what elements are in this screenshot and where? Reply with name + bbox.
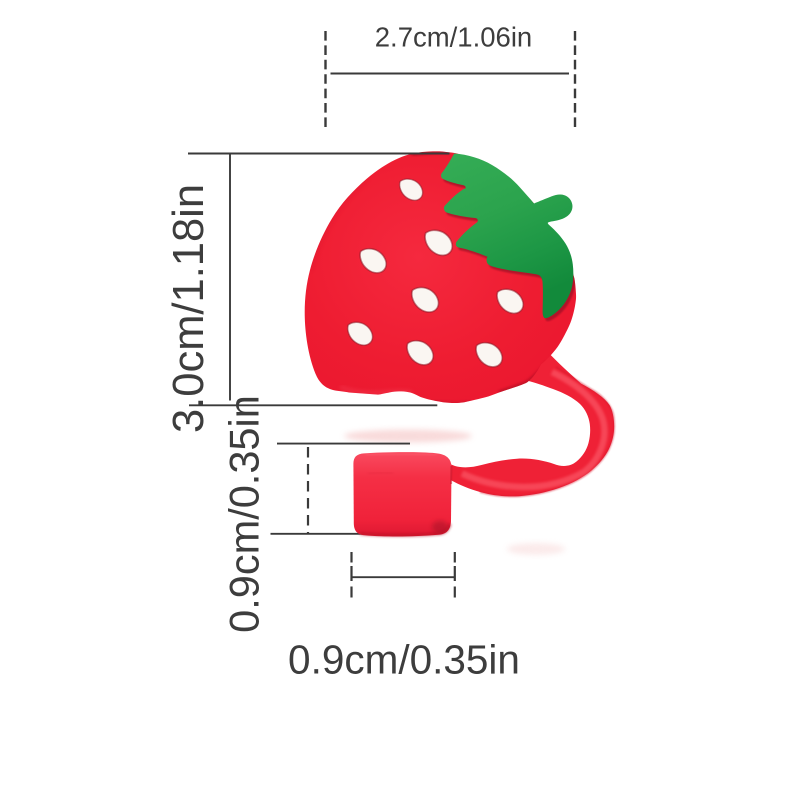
svg-text:3.0cm/1.18in: 3.0cm/1.18in [165,184,213,433]
svg-text:0.9cm/0.35in: 0.9cm/0.35in [288,637,520,683]
svg-text:2.7cm/1.06in: 2.7cm/1.06in [375,22,532,53]
svg-text:0.9cm/0.35in: 0.9cm/0.35in [221,395,268,633]
